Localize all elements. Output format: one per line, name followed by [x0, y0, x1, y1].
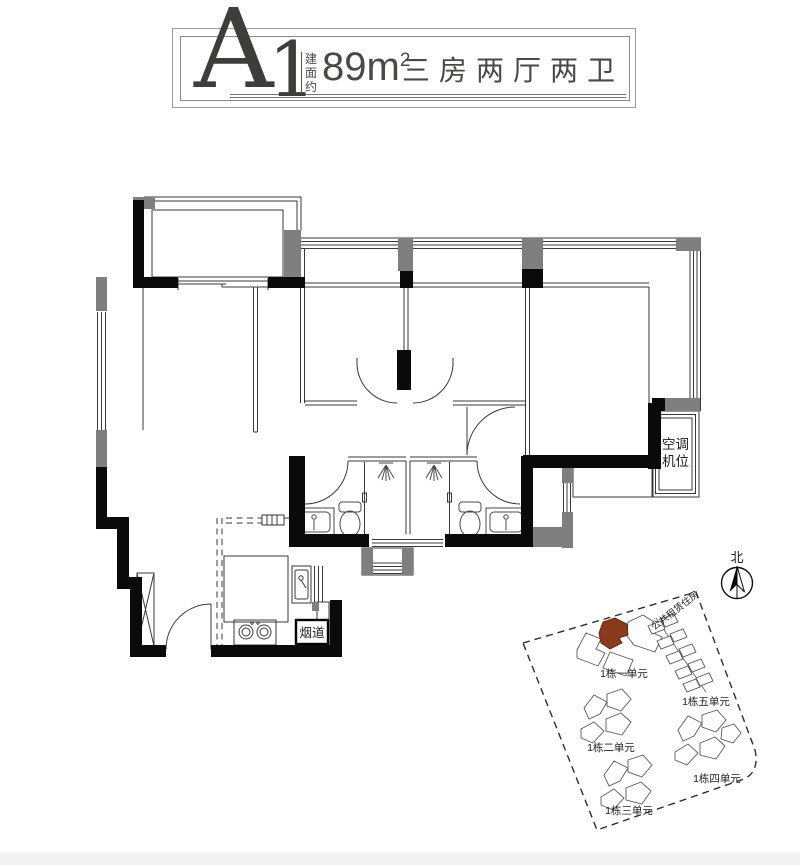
bedroom-right-door-arc [413, 358, 453, 403]
kitchen-dashed-left [217, 518, 222, 645]
site-plan: 1栋一单元 1栋二单元 1栋三单元 1栋四单元 1栋五单元 公共租赁住房 [523, 588, 756, 830]
ac-platform: 空调 机位 [662, 437, 689, 469]
kitchen-counter [224, 556, 288, 622]
stove [234, 620, 276, 645]
kitchen-dashed-top [226, 518, 262, 523]
balcony-outer-line [144, 197, 301, 230]
floorplan-page: { "header": { "unit_code_letter": "A", "… [0, 0, 800, 865]
hallway-door-arc [467, 407, 515, 455]
partition-c [404, 287, 408, 350]
building-label-3: 1栋三单元 [605, 804, 653, 817]
burner-right-inner [260, 628, 268, 636]
shower-bay-window [373, 563, 402, 574]
compass: 北 [722, 550, 753, 599]
shower-spray-left [378, 463, 394, 481]
entry-door-arc [166, 604, 211, 649]
shower-spray-right [426, 463, 442, 481]
kitchen-faucet-lever [301, 580, 306, 588]
basin-left-faucet [312, 515, 316, 519]
building-label-5: 1栋五单元 [682, 695, 730, 708]
bedroom-left-door-arc [357, 358, 397, 403]
north-label: 北 [730, 550, 743, 565]
building-label-1: 1栋一单元 [600, 667, 648, 680]
bathroom-left-door-arc [305, 461, 348, 504]
basin-right-faucet [504, 515, 508, 519]
highlighted-unit [599, 618, 628, 649]
kitchen-east-window [315, 566, 323, 602]
bathroom-right-door-arc [477, 461, 520, 504]
kitchen-hatch-lines [267, 515, 289, 525]
bath-south-window [372, 540, 443, 547]
building-label-2: 1栋二单元 [587, 741, 635, 754]
flue: 烟道 [296, 620, 328, 644]
balcony-inner-line [152, 210, 283, 277]
toilet-left-bowl [340, 511, 360, 537]
columns [96, 197, 701, 645]
burner-left-inner [242, 628, 250, 636]
partition-b [254, 287, 258, 432]
north-bay-band [299, 238, 701, 249]
flue-label: 烟道 [299, 626, 325, 640]
floor-plan-canvas: 烟道 空调 机位 北 [0, 0, 800, 865]
bathroom-partition [406, 461, 410, 534]
partition-a [301, 249, 305, 403]
bedroom-north-wall [305, 283, 649, 287]
bottom-strip [0, 853, 800, 865]
public-rental-label: 公共租赁住房 [649, 588, 701, 633]
kitchen-hatch-window [262, 515, 284, 525]
building-label-4: 1栋四单元 [693, 772, 741, 785]
compass-needle-dark [730, 566, 738, 592]
partition-d [526, 287, 530, 455]
east-bay-band [690, 238, 701, 411]
kitchen-sink-basin [295, 570, 308, 599]
compass-needle-light [737, 566, 745, 592]
ac-label-line1: 空调 [662, 437, 689, 452]
balcony-slider-door [178, 278, 268, 290]
burner-left [239, 625, 253, 639]
ac-label-line2: 机位 [662, 454, 689, 469]
shower-screens [365, 462, 450, 534]
bathroom-top-wall [348, 457, 477, 461]
kitchen-faucet [299, 576, 303, 580]
left-window [98, 312, 106, 430]
east-service-bay [573, 468, 653, 497]
east-service-window [564, 483, 571, 512]
stove-knob-1 [251, 622, 253, 624]
stove-knob-2 [257, 622, 259, 624]
toilet-right-bowl [460, 511, 480, 537]
structural-walls [96, 200, 665, 657]
burner-right [257, 625, 271, 639]
